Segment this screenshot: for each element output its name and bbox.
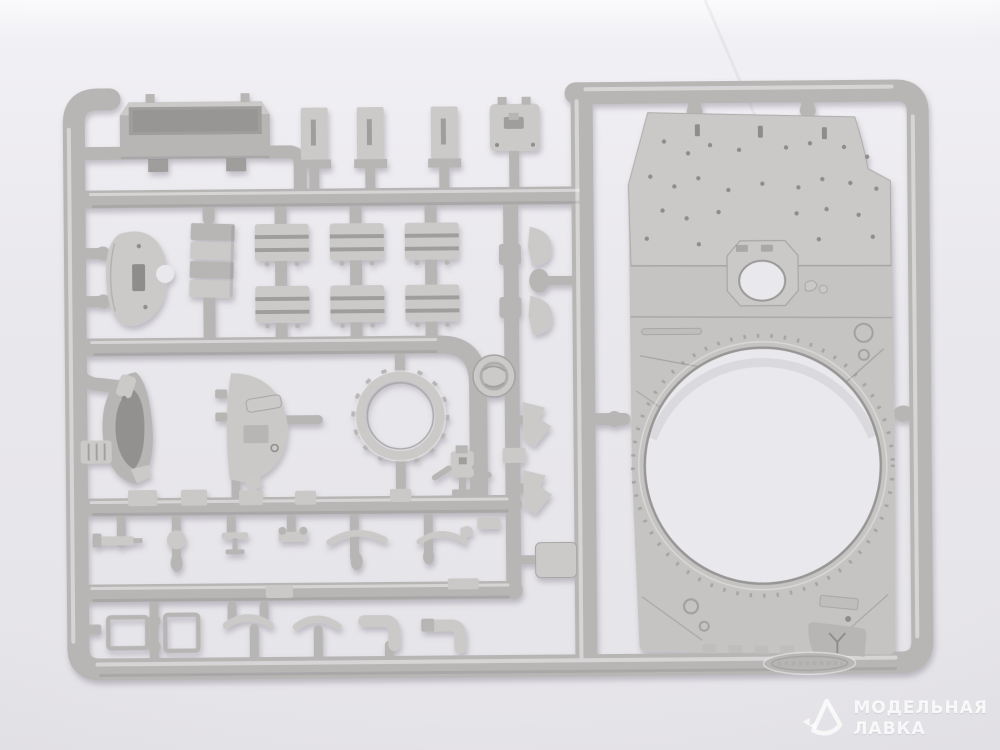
hull-roof-panel-with-turret-ring-opening: [628, 111, 897, 657]
modelnaya-lavka-logo-icon: [798, 696, 844, 742]
backdrop-crease: [705, 0, 762, 132]
product-photo: МОДЕЛЬНАЯ ЛАВКА: [0, 0, 1000, 750]
sprue-photo-illustration: [0, 0, 1000, 750]
left-rail-ribbed-block: [81, 440, 112, 463]
tubular-frame-rails: [84, 614, 198, 654]
molded-oval-stamp: [763, 652, 855, 675]
toothed-hatch-ring: [354, 369, 447, 462]
dome-cover: [106, 231, 175, 326]
pipe-elbows: [364, 618, 460, 648]
junction-disc: [473, 355, 515, 397]
watermark-text: МОДЕЛЬНАЯ ЛАВКА: [853, 698, 988, 741]
stowage-tray: [120, 93, 271, 172]
watermark-line2: ЛАВКА: [853, 719, 988, 740]
lever-fittings: [476, 401, 577, 578]
hatch-half-outer: [215, 373, 288, 493]
square-hatch-plate: [490, 97, 540, 151]
watermark-line1: МОДЕЛЬНАЯ: [853, 698, 988, 719]
u-channel-brackets: [298, 106, 462, 168]
ammo-box-stack: [189, 223, 235, 298]
watermark: МОДЕЛЬНАЯ ЛАВКА: [798, 696, 988, 742]
